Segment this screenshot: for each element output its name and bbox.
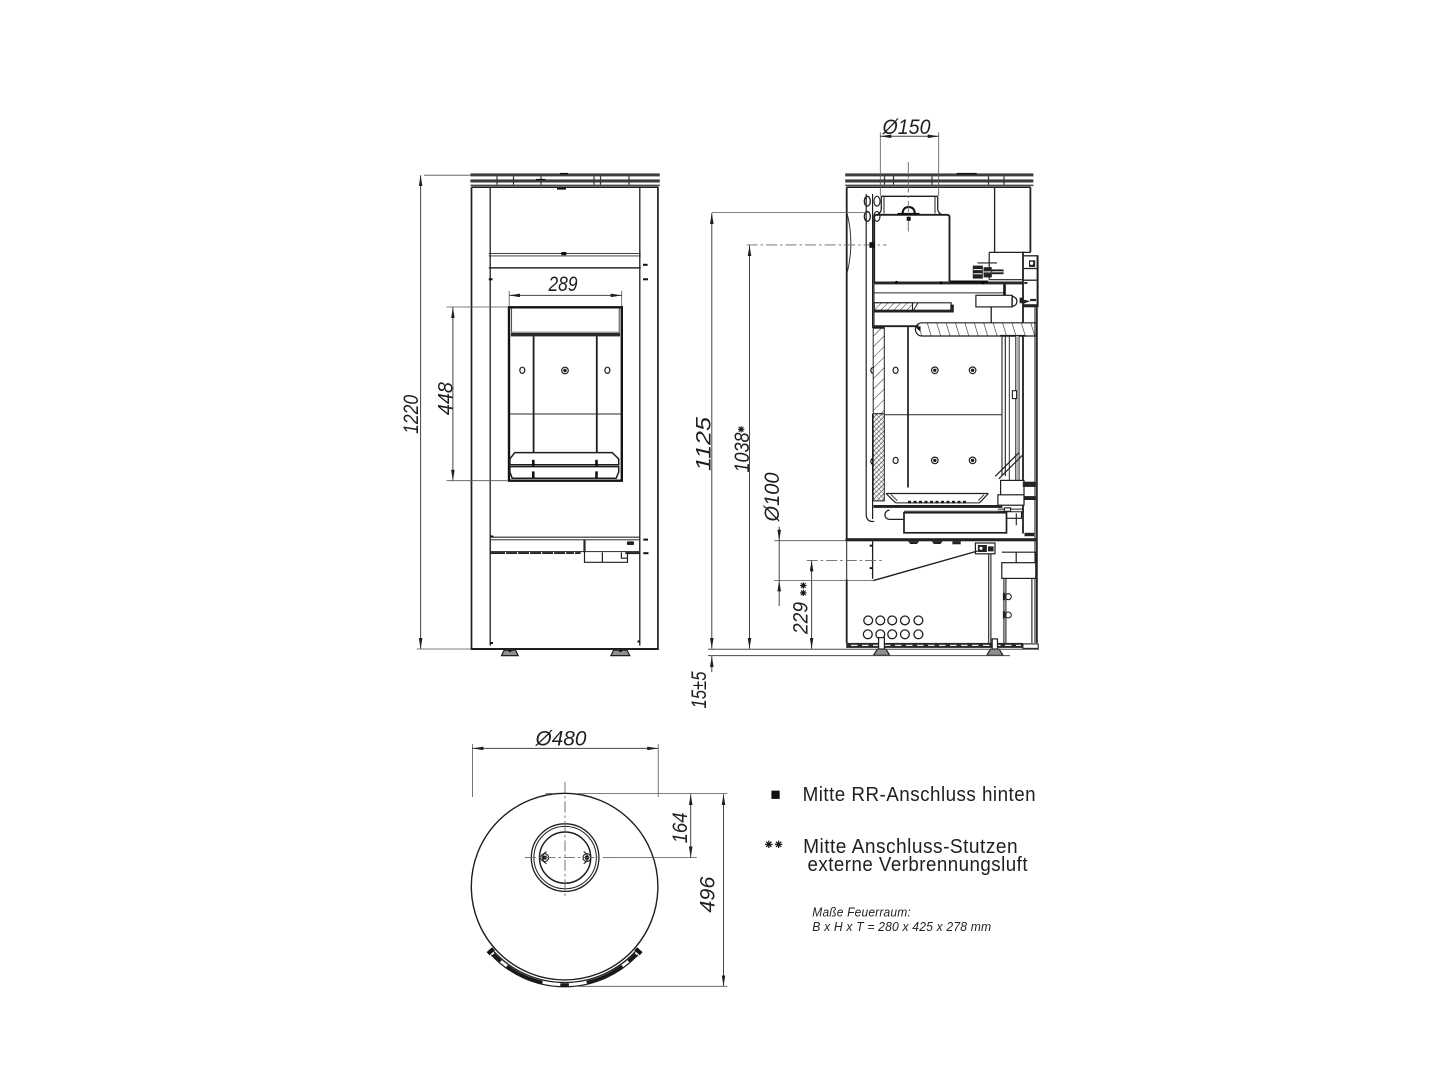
svg-text:externe Verbrennungsluft: externe Verbrennungsluft (808, 854, 1029, 876)
svg-text:1220: 1220 (400, 395, 423, 434)
svg-text:448: 448 (435, 382, 458, 415)
svg-text:1038: 1038 (731, 432, 754, 472)
svg-text:289: 289 (548, 273, 578, 296)
svg-text:Ø100: Ø100 (761, 472, 784, 522)
svg-text:164: 164 (669, 812, 692, 843)
svg-text:Mitte RR-Anschluss hinten: Mitte RR-Anschluss hinten (803, 784, 1037, 806)
svg-text:229: 229 (790, 602, 813, 635)
svg-text:1125: 1125 (693, 417, 716, 471)
svg-text:Ø480: Ø480 (535, 728, 587, 751)
svg-text:496: 496 (697, 876, 720, 912)
svg-text:Maße Feuerraum:: Maße Feuerraum: (812, 905, 911, 920)
svg-text:B x H x T = 280 x 425 x 278 mm: B x H x T = 280 x 425 x 278 mm (812, 919, 991, 934)
svg-text:15±5: 15±5 (688, 671, 711, 708)
svg-text:Ø150: Ø150 (882, 116, 931, 139)
